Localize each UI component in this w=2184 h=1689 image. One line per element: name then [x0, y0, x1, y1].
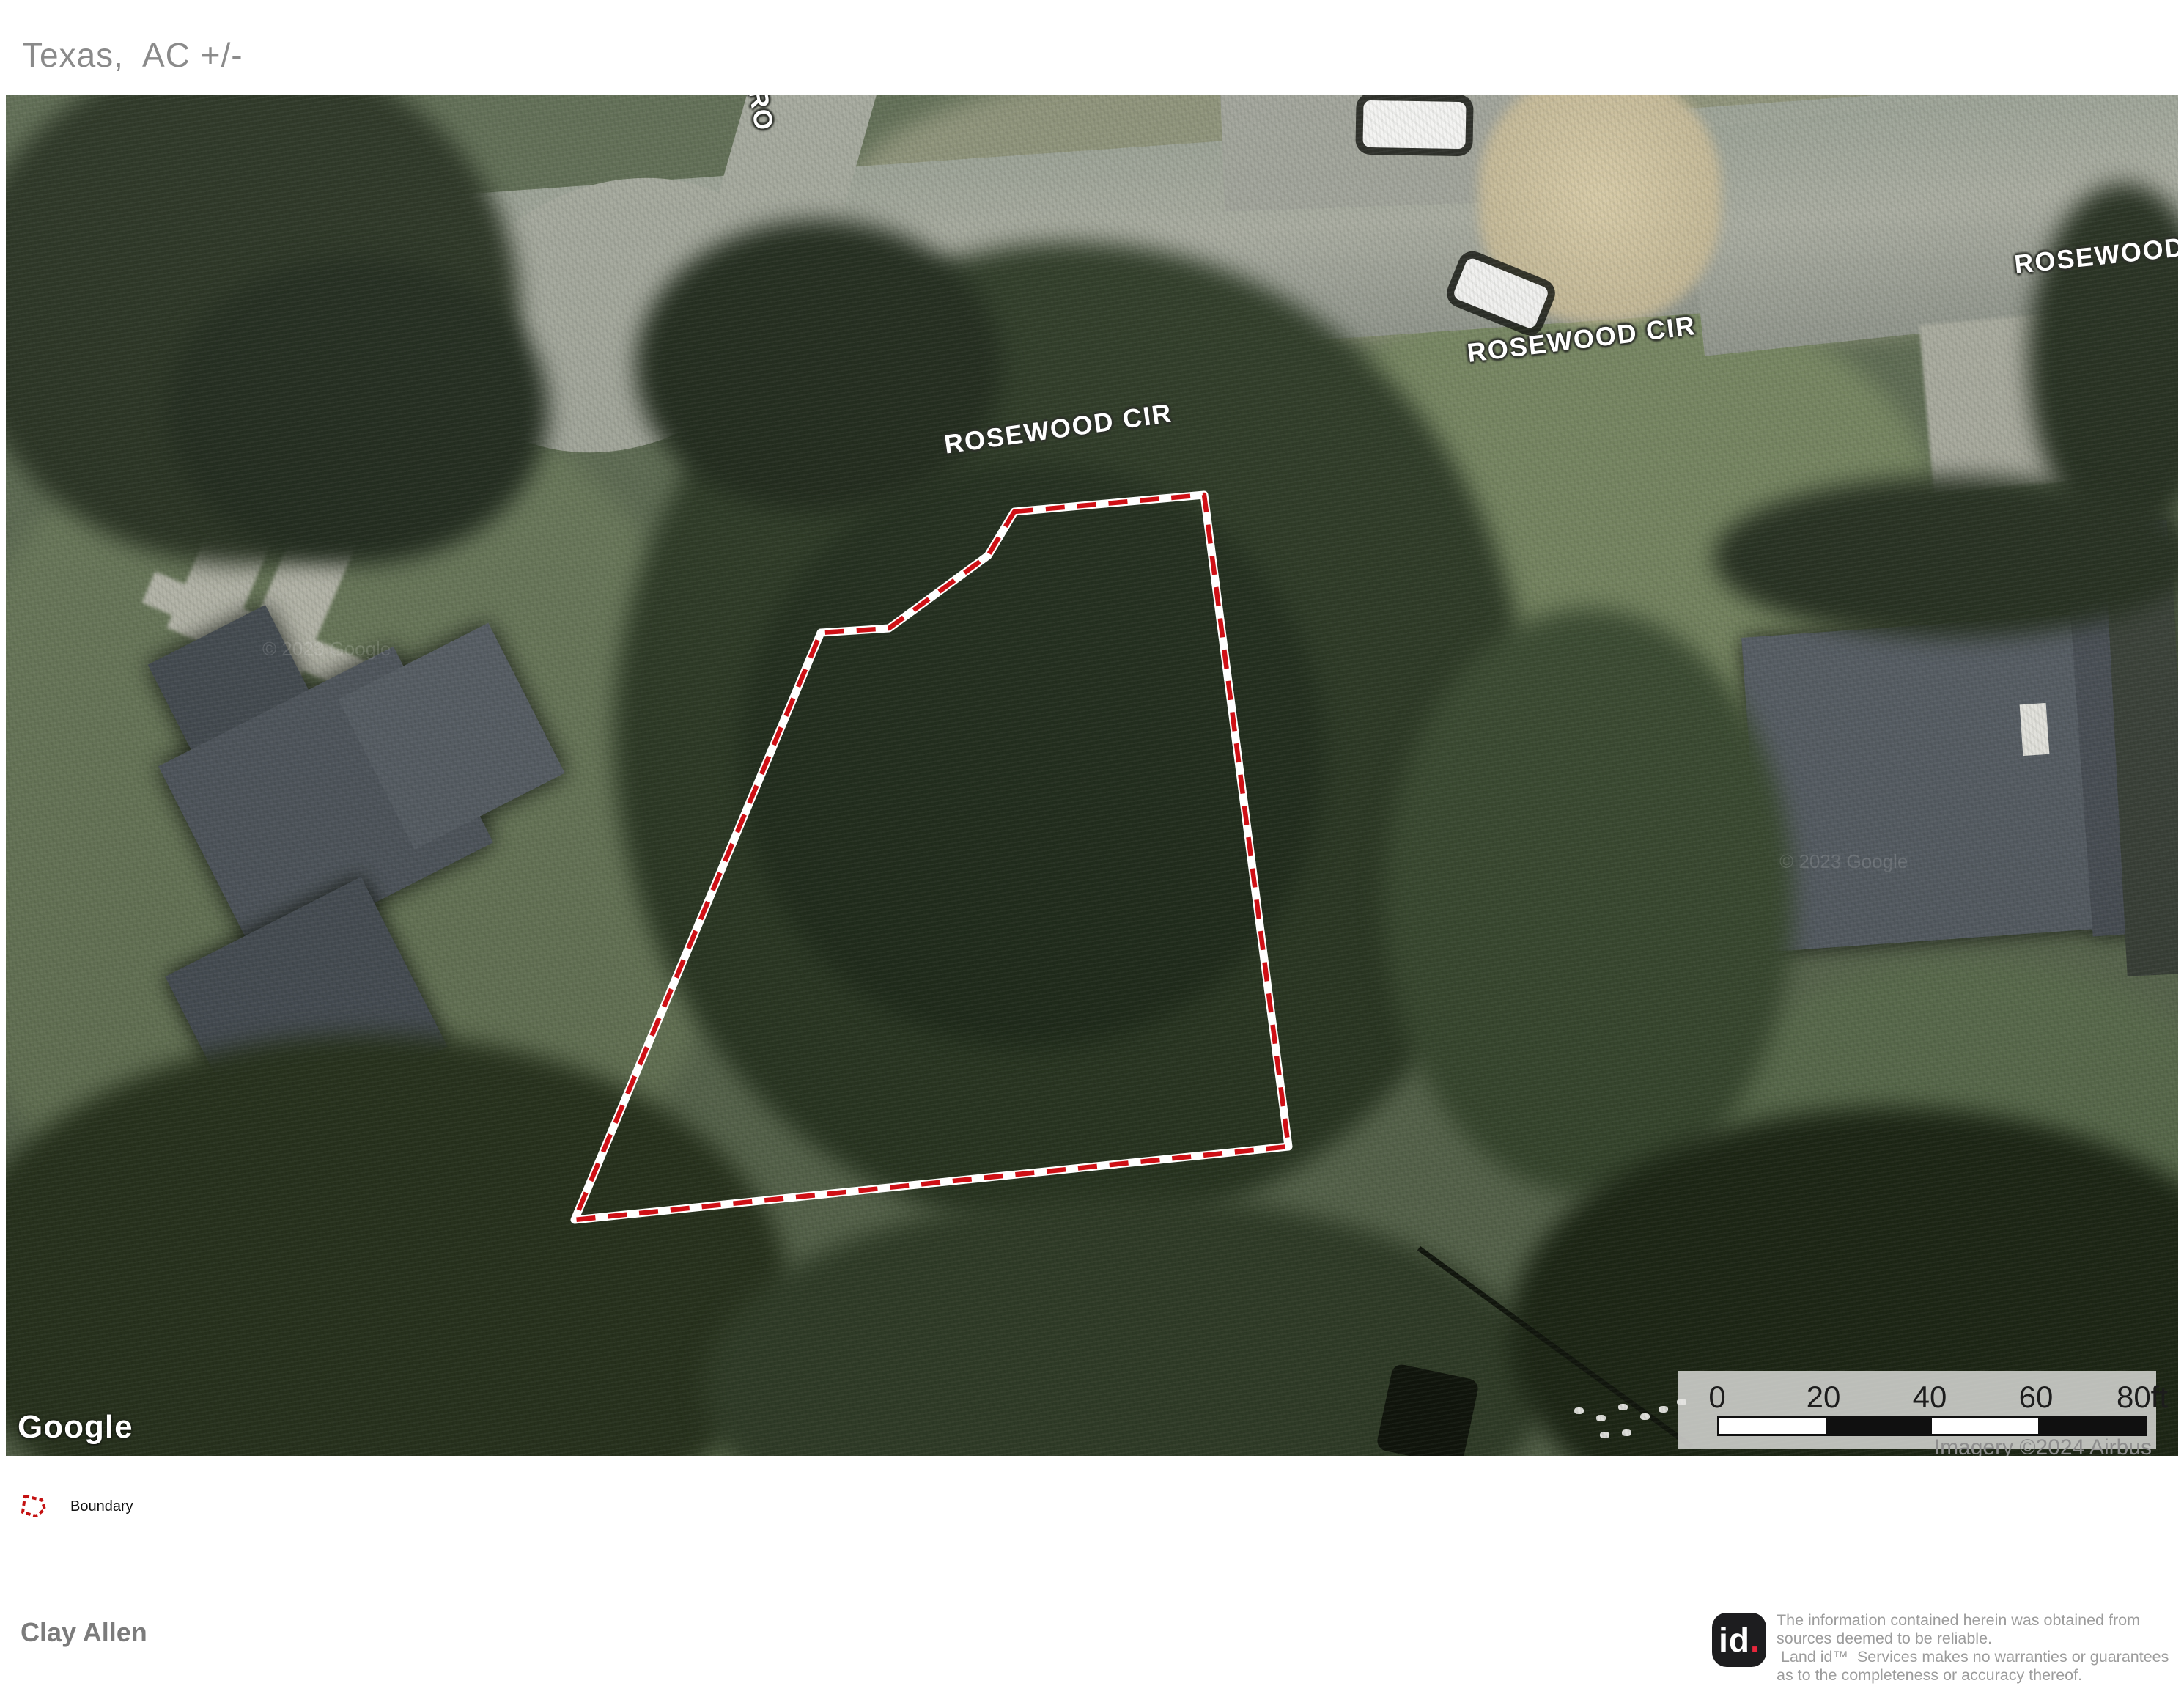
disclaimer-line-1: The information contained herein was obt… — [1777, 1611, 2172, 1630]
google-logo: Google — [18, 1409, 133, 1446]
land-id-logo-text: id — [1719, 1620, 1750, 1660]
boundary-casing — [575, 495, 1288, 1220]
boundary-legend-shape — [23, 1496, 45, 1516]
scale-tick-0: 0 — [1708, 1380, 1725, 1415]
scale-bar-segments — [1717, 1416, 2147, 1436]
satellite-map[interactable]: © 2023 Google © 2023 Google ROSEWOOD CIR… — [6, 95, 2178, 1456]
land-id-logo-dot: . — [1750, 1620, 1760, 1660]
scale-segment-2 — [1826, 1418, 1932, 1434]
disclaimer: The information contained herein was obt… — [1777, 1611, 2172, 1685]
disclaimer-line-3: Land id™ Services makes no warranties or… — [1777, 1648, 2172, 1666]
scale-tick-20: 20 — [1807, 1380, 1841, 1415]
boundary-dashed-line — [575, 495, 1288, 1220]
page: Texas, AC +/- — [0, 0, 2184, 1689]
scale-bar: 0 20 40 60 80ft Imagery ©2024 Airbus — [1678, 1371, 2156, 1449]
boundary-legend-icon — [18, 1490, 50, 1523]
scale-tick-80: 80ft — [2117, 1380, 2168, 1415]
street-label-rosewood-top: RO — [742, 95, 780, 133]
imagery-credit: Imagery ©2024 Airbus — [1934, 1435, 2152, 1456]
author-name: Clay Allen — [21, 1617, 147, 1648]
scale-tick-60: 60 — [2019, 1380, 2054, 1415]
legend-label-boundary: Boundary — [70, 1498, 133, 1515]
disclaimer-line-4: as to the completeness or accuracy there… — [1777, 1666, 2172, 1685]
disclaimer-line-2: sources deemed to be reliable. — [1777, 1630, 2172, 1648]
scale-segment-4 — [2038, 1418, 2144, 1434]
land-id-logo: id. — [1712, 1613, 1766, 1667]
legend-row: Boundary — [18, 1490, 133, 1523]
scale-tick-40: 40 — [1913, 1380, 1947, 1415]
page-title: Texas, AC +/- — [22, 35, 243, 75]
boundary-polygon — [6, 95, 2178, 1456]
scale-segment-3 — [1932, 1418, 2038, 1434]
scale-segment-1 — [1719, 1418, 1826, 1434]
